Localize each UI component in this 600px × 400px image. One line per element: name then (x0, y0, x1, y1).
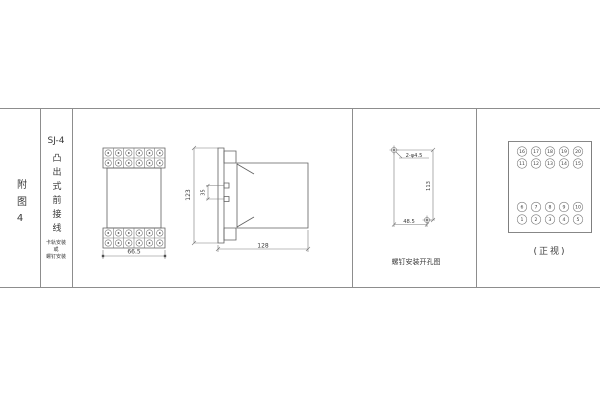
side-height-dim-text: 123 (185, 189, 192, 201)
terminal-layout-drawing: 16 17 18 19 20 11 12 13 14 15 6 7 8 9 10… (508, 141, 592, 233)
frame-divider-4 (476, 108, 477, 287)
terminal-number: 14 (561, 161, 567, 167)
terminal-number: 20 (575, 149, 581, 155)
terminal-number: 5 (577, 217, 580, 223)
frame-bottom-line (0, 287, 600, 288)
figure-row-label: 附图4 (0, 176, 40, 234)
terminal-circles: 16 17 18 19 20 11 12 13 14 15 6 7 8 9 10… (517, 147, 583, 225)
mount-note: 卡轨安装 或 螺钉安装 (40, 240, 72, 261)
frame-divider-2 (72, 108, 73, 287)
side-view-drawing: 123 35 128 (180, 138, 320, 258)
terminal-number: 17 (533, 149, 539, 155)
frame-top-line (0, 108, 600, 109)
side-depth-dimension: 128 (216, 230, 310, 252)
mount-note-line-3: 螺钉安装 (40, 254, 72, 261)
terminal-number: 12 (533, 161, 539, 167)
front-body-outline (107, 168, 161, 228)
side-lower-lug (224, 197, 229, 202)
terminal-layout-caption: (正视) (506, 244, 594, 257)
connection-type-label: 凸出式前接线 (40, 152, 72, 238)
drill-diagram: 2-φ4.5 113 48.5 (375, 135, 460, 245)
front-view-drawing: 66.5 (95, 140, 180, 265)
terminal-number: 9 (563, 205, 566, 211)
terminal-number: 4 (563, 217, 566, 223)
frame-divider-3 (352, 108, 353, 287)
relay-model-label: SJ-4 (40, 136, 72, 146)
terminal-number: 16 (519, 149, 525, 155)
side-bottom-terminal-block (224, 228, 236, 240)
side-notch-dimension: 35 (201, 184, 225, 201)
terminal-number: 10 (575, 205, 581, 211)
terminal-number: 18 (547, 149, 553, 155)
front-width-dim-text: 66.5 (127, 249, 141, 256)
drawing-sheet: 附图4 SJ-4 凸出式前接线 卡轨安装 或 螺钉安装 (0, 0, 600, 400)
drill-holes-label: 2-φ4.5 (396, 152, 430, 159)
mount-note-line-1: 卡轨安装 (40, 240, 72, 247)
terminal-number: 3 (549, 217, 552, 223)
drill-vertical-dimension: 113 (397, 148, 435, 222)
side-notch-dim-text: 35 (201, 189, 207, 195)
side-body-gussets (237, 164, 254, 227)
drill-holes-label-text: 2-φ4.5 (406, 153, 423, 159)
terminal-number: 2 (535, 217, 538, 223)
drill-diagram-caption: 螺钉安装开孔图 (372, 257, 460, 267)
side-top-terminal-block (224, 151, 236, 163)
side-upper-lug (224, 183, 229, 188)
drill-horizontal-dimension: 48.5 (392, 153, 429, 227)
terminal-number: 8 (549, 205, 552, 211)
terminal-number: 15 (575, 161, 581, 167)
drill-horizontal-dim-text: 48.5 (403, 219, 415, 225)
drill-vertical-dim-text: 113 (426, 181, 432, 191)
side-depth-dim-text: 128 (257, 243, 269, 250)
terminal-number: 11 (519, 161, 525, 167)
front-width-dimension: 66.5 (102, 249, 166, 260)
side-body-outline (237, 163, 308, 228)
terminal-number: 13 (547, 161, 553, 167)
side-flange-plate (218, 148, 224, 243)
terminal-number: 19 (561, 149, 567, 155)
terminal-number: 6 (521, 205, 524, 211)
terminal-number: 7 (535, 205, 538, 211)
terminal-number: 1 (521, 217, 524, 223)
mount-note-line-2: 或 (40, 247, 72, 254)
